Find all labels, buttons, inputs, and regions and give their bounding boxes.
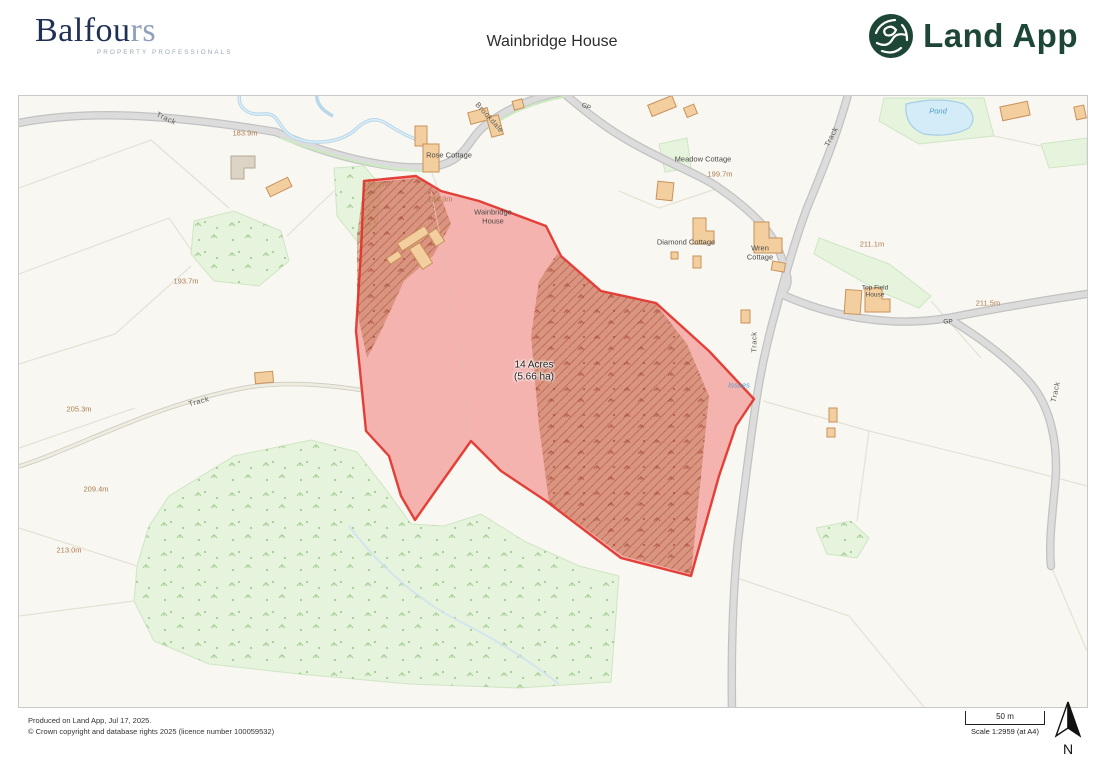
map-label-water: Issues	[728, 382, 750, 391]
map-label-road: Track	[1050, 381, 1063, 403]
balfours-main-text: Balfou	[35, 12, 131, 49]
credit-produced-on: Produced on Land App, Jul 17, 2025.	[28, 715, 274, 726]
landapp-globe-icon	[868, 13, 914, 59]
balfours-wordmark: Balfours	[35, 14, 195, 48]
page: Balfours PROPERTY PROFESSIONALS Wainbrid…	[0, 0, 1104, 764]
map-label-place-sm: Top Field House	[862, 285, 888, 300]
map-label-elev: 192.2m	[363, 181, 388, 190]
map-label-elev: 205.3m	[66, 406, 91, 415]
scale-ratio: Scale 1:2959 (at A4)	[965, 727, 1045, 736]
page-title: Wainbridge House	[486, 33, 617, 51]
map-label-road: Brookdale	[473, 101, 505, 135]
map-label-area: 14 Acres (5.66 ha)	[514, 360, 554, 383]
map-label-elev: 211.5m	[976, 300, 1000, 309]
north-arrow: N	[1052, 700, 1084, 757]
map-label-road: Track	[751, 332, 760, 353]
map-label-place: Meadow Cottage	[675, 156, 732, 165]
map-labels-layer: Track183.9mBrookdaleGPRose CottageMeadow…	[19, 96, 1087, 707]
scale-bar: 50 m Scale 1:2959 (at A4)	[965, 711, 1045, 736]
credit-copyright: © Crown copyright and database rights 20…	[28, 726, 274, 737]
balfours-subtitle: PROPERTY PROFESSIONALS	[97, 49, 195, 56]
map-label-place: Rose Cottage	[426, 152, 472, 161]
map-label-elev: 209.4m	[83, 486, 108, 495]
landapp-wordmark: Land App	[923, 17, 1078, 55]
map-label-road: Track	[155, 111, 178, 128]
balfours-accent-text: rs	[131, 12, 157, 49]
north-label: N	[1052, 741, 1084, 757]
scale-bar-bracket: 50 m	[965, 711, 1045, 725]
map-label-elev: 211.1m	[860, 241, 884, 250]
map-label-road: Track	[188, 395, 211, 409]
map-label-place-sm: GP	[580, 102, 592, 113]
scale-distance: 50 m	[966, 712, 1044, 721]
map-label-elev: 199.7m	[707, 171, 732, 180]
map-label-place-sm: GP	[943, 318, 952, 325]
map-label-elev: 184.9m	[427, 196, 452, 205]
map-label-place: Wainbridge House	[474, 208, 512, 225]
north-arrow-icon	[1052, 700, 1084, 738]
balfours-logo: Balfours PROPERTY PROFESSIONALS	[35, 14, 195, 56]
map-label-place: Diamond Cottage	[657, 239, 715, 248]
map-label-road: Track	[823, 126, 840, 149]
map-label-elev: 193.7m	[173, 278, 198, 287]
landapp-logo: Land App	[868, 13, 1078, 59]
map-label-place: Wren Cottage	[747, 244, 773, 261]
map-label-elev: 183.9m	[232, 130, 257, 139]
map-label-water: Pond	[929, 108, 947, 117]
credits: Produced on Land App, Jul 17, 2025. © Cr…	[28, 715, 274, 737]
map-canvas: Track183.9mBrookdaleGPRose CottageMeadow…	[18, 95, 1088, 708]
map-label-elev: 213.0m	[56, 547, 81, 556]
